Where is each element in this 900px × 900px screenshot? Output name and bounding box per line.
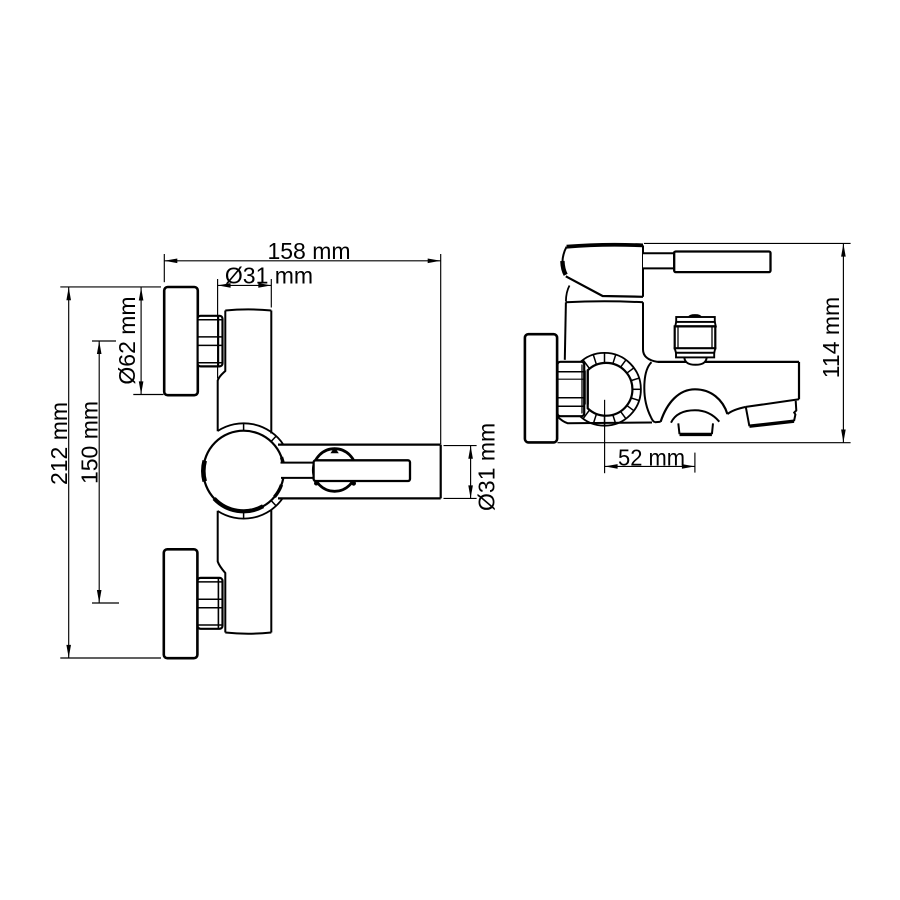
svg-text:52 mm: 52 mm bbox=[618, 445, 685, 471]
svg-text:212 mm: 212 mm bbox=[46, 402, 72, 485]
svg-text:150 mm: 150 mm bbox=[76, 401, 102, 484]
svg-text:Ø31 mm: Ø31 mm bbox=[225, 262, 313, 288]
svg-text:Ø62 mm: Ø62 mm bbox=[114, 296, 140, 384]
svg-text:Ø31 mm: Ø31 mm bbox=[473, 423, 499, 511]
svg-text:158 mm: 158 mm bbox=[267, 238, 350, 264]
svg-text:114 mm: 114 mm bbox=[818, 297, 844, 378]
